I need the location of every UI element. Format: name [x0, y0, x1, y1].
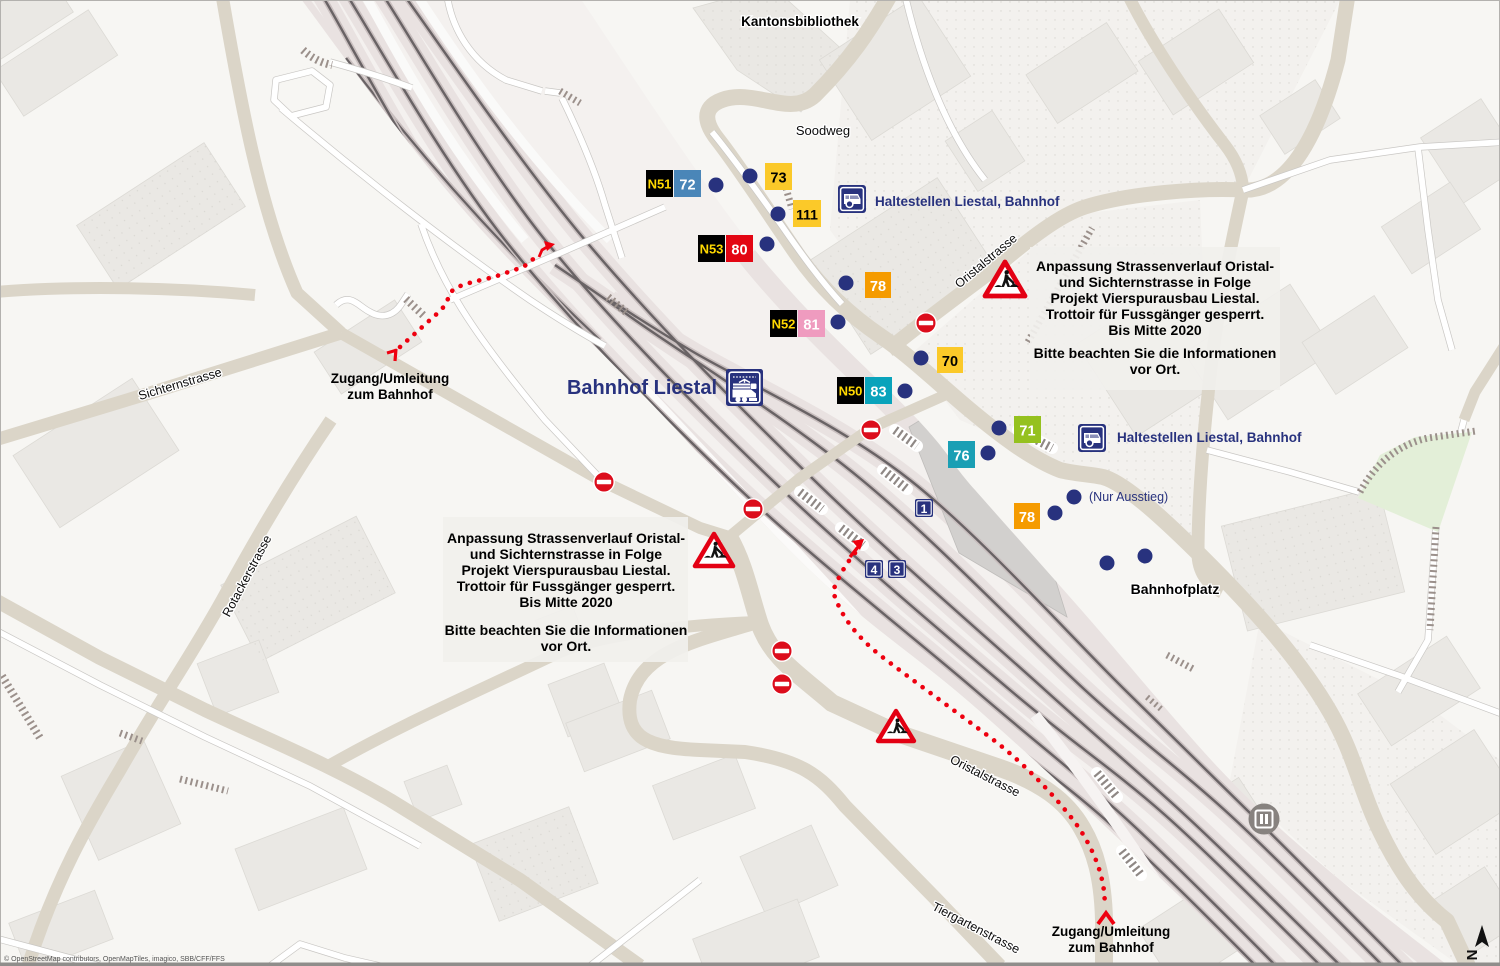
- svg-text:Bis Mitte 2020: Bis Mitte 2020: [1108, 322, 1202, 338]
- svg-text:und Sichternstrasse in Folge: und Sichternstrasse in Folge: [1059, 274, 1251, 290]
- svg-text:Bis Mitte 2020: Bis Mitte 2020: [519, 594, 613, 610]
- svg-text:zum Bahnhof: zum Bahnhof: [1068, 940, 1154, 955]
- svg-text:Kantonsbibliothek: Kantonsbibliothek: [741, 14, 859, 29]
- svg-text:70: 70: [942, 354, 958, 370]
- svg-text:Anpassung Strassenverlauf Oris: Anpassung Strassenverlauf Oristal-: [447, 530, 685, 546]
- svg-text:Projekt Vierspurausbau Liestal: Projekt Vierspurausbau Liestal.: [461, 562, 670, 578]
- svg-text:76: 76: [953, 449, 969, 465]
- svg-text:Zugang/Umleitung: Zugang/Umleitung: [1052, 924, 1171, 939]
- svg-text:111: 111: [796, 207, 818, 223]
- svg-text:78: 78: [1019, 510, 1035, 526]
- svg-text:Haltestellen Liestal, Bahnhof: Haltestellen Liestal, Bahnhof: [875, 194, 1060, 209]
- svg-text:Bahnhof Liestal: Bahnhof Liestal: [567, 377, 717, 399]
- svg-text:(Nur Ausstieg): (Nur Ausstieg): [1089, 490, 1168, 504]
- svg-text:N52: N52: [772, 317, 796, 332]
- svg-text:3: 3: [894, 563, 901, 577]
- svg-text:83: 83: [870, 385, 886, 401]
- svg-text:81: 81: [803, 318, 819, 334]
- svg-text:Trottoir für Fussgänger gesper: Trottoir für Fussgänger gesperrt.: [457, 578, 676, 594]
- svg-text:Bahnhofplatz: Bahnhofplatz: [1131, 581, 1220, 597]
- svg-text:N50: N50: [839, 384, 863, 399]
- svg-text:72: 72: [679, 178, 695, 194]
- svg-text:1: 1: [921, 502, 928, 516]
- svg-text:Projekt Vierspurausbau Liestal: Projekt Vierspurausbau Liestal.: [1050, 290, 1259, 306]
- svg-text:Soodweg: Soodweg: [796, 123, 850, 138]
- svg-text:71: 71: [1019, 424, 1035, 440]
- svg-text:4: 4: [871, 563, 878, 577]
- svg-text:73: 73: [770, 171, 786, 187]
- svg-text:Zugang/Umleitung: Zugang/Umleitung: [331, 371, 450, 386]
- svg-text:und Sichternstrasse in Folge: und Sichternstrasse in Folge: [470, 546, 662, 562]
- svg-text:zum Bahnhof: zum Bahnhof: [347, 387, 433, 402]
- svg-text:80: 80: [731, 243, 747, 259]
- svg-text:Anpassung Strassenverlauf Oris: Anpassung Strassenverlauf Oristal-: [1036, 258, 1274, 274]
- svg-text:Bitte beachten Sie die Informa: Bitte beachten Sie die Informationen: [445, 622, 688, 638]
- svg-text:N: N: [1464, 950, 1481, 961]
- svg-text:78: 78: [870, 279, 886, 295]
- svg-text:vor Ort.: vor Ort.: [541, 638, 592, 654]
- svg-text:N51: N51: [648, 177, 672, 192]
- svg-text:Haltestellen Liestal, Bahnhof: Haltestellen Liestal, Bahnhof: [1117, 430, 1302, 445]
- svg-text:© OpenStreetMap contributors,: © OpenStreetMap contributors, OpenMapTil…: [4, 955, 225, 963]
- svg-text:Trottoir für Fussgänger gesper: Trottoir für Fussgänger gesperrt.: [1046, 306, 1265, 322]
- svg-text:N53: N53: [700, 242, 724, 257]
- svg-text:vor Ort.: vor Ort.: [1130, 361, 1181, 377]
- svg-text:Bitte beachten Sie die Informa: Bitte beachten Sie die Informationen: [1034, 345, 1277, 361]
